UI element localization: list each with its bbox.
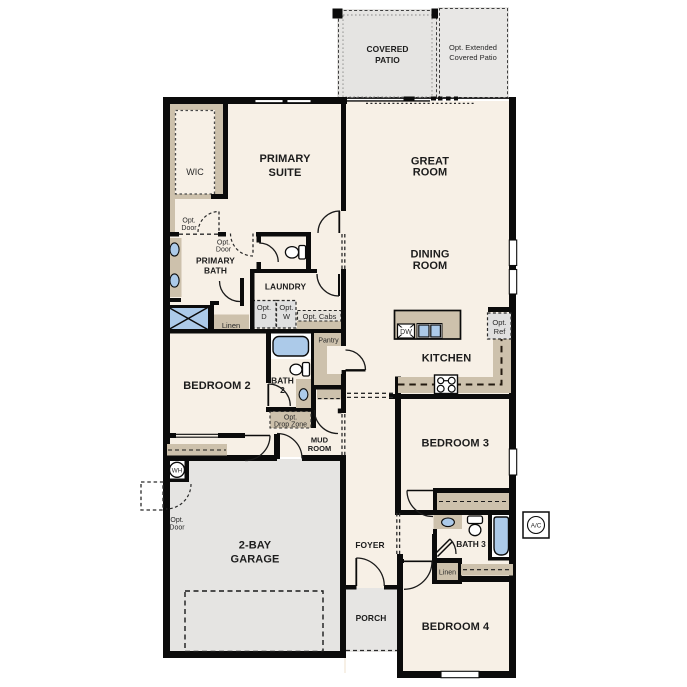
svg-text:PRIMARY: PRIMARY	[196, 256, 235, 266]
svg-text:BEDROOM 3: BEDROOM 3	[422, 437, 490, 449]
svg-text:GARAGE: GARAGE	[231, 553, 280, 565]
svg-text:Opt. Cabs: Opt. Cabs	[303, 312, 337, 321]
svg-text:BATH: BATH	[271, 376, 294, 386]
svg-text:2-BAY: 2-BAY	[239, 540, 272, 552]
svg-text:SUITE: SUITE	[269, 167, 302, 179]
svg-text:Opt.: Opt.	[182, 218, 195, 225]
svg-text:PATIO: PATIO	[375, 55, 400, 65]
svg-text:Door: Door	[181, 225, 197, 232]
svg-text:WH: WH	[172, 467, 183, 474]
svg-text:PORCH: PORCH	[356, 613, 387, 623]
svg-text:A/C: A/C	[531, 523, 542, 530]
svg-text:Covered Patio: Covered Patio	[449, 53, 497, 62]
svg-text:Opt.: Opt.	[170, 517, 183, 524]
svg-text:BATH 3: BATH 3	[456, 539, 486, 549]
svg-text:Opt. Extended: Opt. Extended	[449, 43, 497, 52]
svg-text:Opt.: Opt.	[284, 415, 297, 422]
svg-text:WIC: WIC	[186, 167, 204, 177]
svg-text:COVERED: COVERED	[366, 44, 408, 54]
svg-text:KITCHEN: KITCHEN	[422, 353, 472, 365]
svg-text:Ref: Ref	[494, 327, 507, 336]
svg-text:Pantry: Pantry	[318, 338, 339, 345]
svg-text:Opt.: Opt.	[217, 240, 230, 247]
svg-text:D: D	[261, 312, 267, 321]
svg-text:ROOM: ROOM	[413, 260, 448, 272]
svg-text:Linen: Linen	[222, 321, 240, 330]
svg-text:DW: DW	[400, 329, 412, 336]
svg-text:BATH: BATH	[204, 265, 227, 275]
svg-text:Opt.: Opt.	[257, 303, 271, 312]
svg-text:Linen: Linen	[439, 570, 456, 577]
svg-text:ROOM: ROOM	[308, 444, 332, 453]
svg-text:W: W	[283, 312, 291, 321]
svg-text:DINING: DINING	[410, 248, 449, 260]
svg-text:BEDROOM 2: BEDROOM 2	[183, 380, 251, 392]
svg-text:Opt.: Opt.	[492, 318, 506, 327]
svg-text:PRIMARY: PRIMARY	[259, 153, 311, 165]
svg-text:Opt.: Opt.	[279, 303, 293, 312]
svg-text:LAUNDRY: LAUNDRY	[265, 281, 307, 291]
svg-text:2: 2	[280, 385, 285, 395]
svg-text:BEDROOM 4: BEDROOM 4	[422, 621, 490, 633]
svg-text:ROOM: ROOM	[413, 167, 448, 179]
svg-text:Door: Door	[216, 247, 232, 254]
svg-text:Door: Door	[169, 525, 185, 532]
svg-text:Drop Zone: Drop Zone	[274, 422, 307, 429]
svg-text:FOYER: FOYER	[355, 540, 384, 550]
